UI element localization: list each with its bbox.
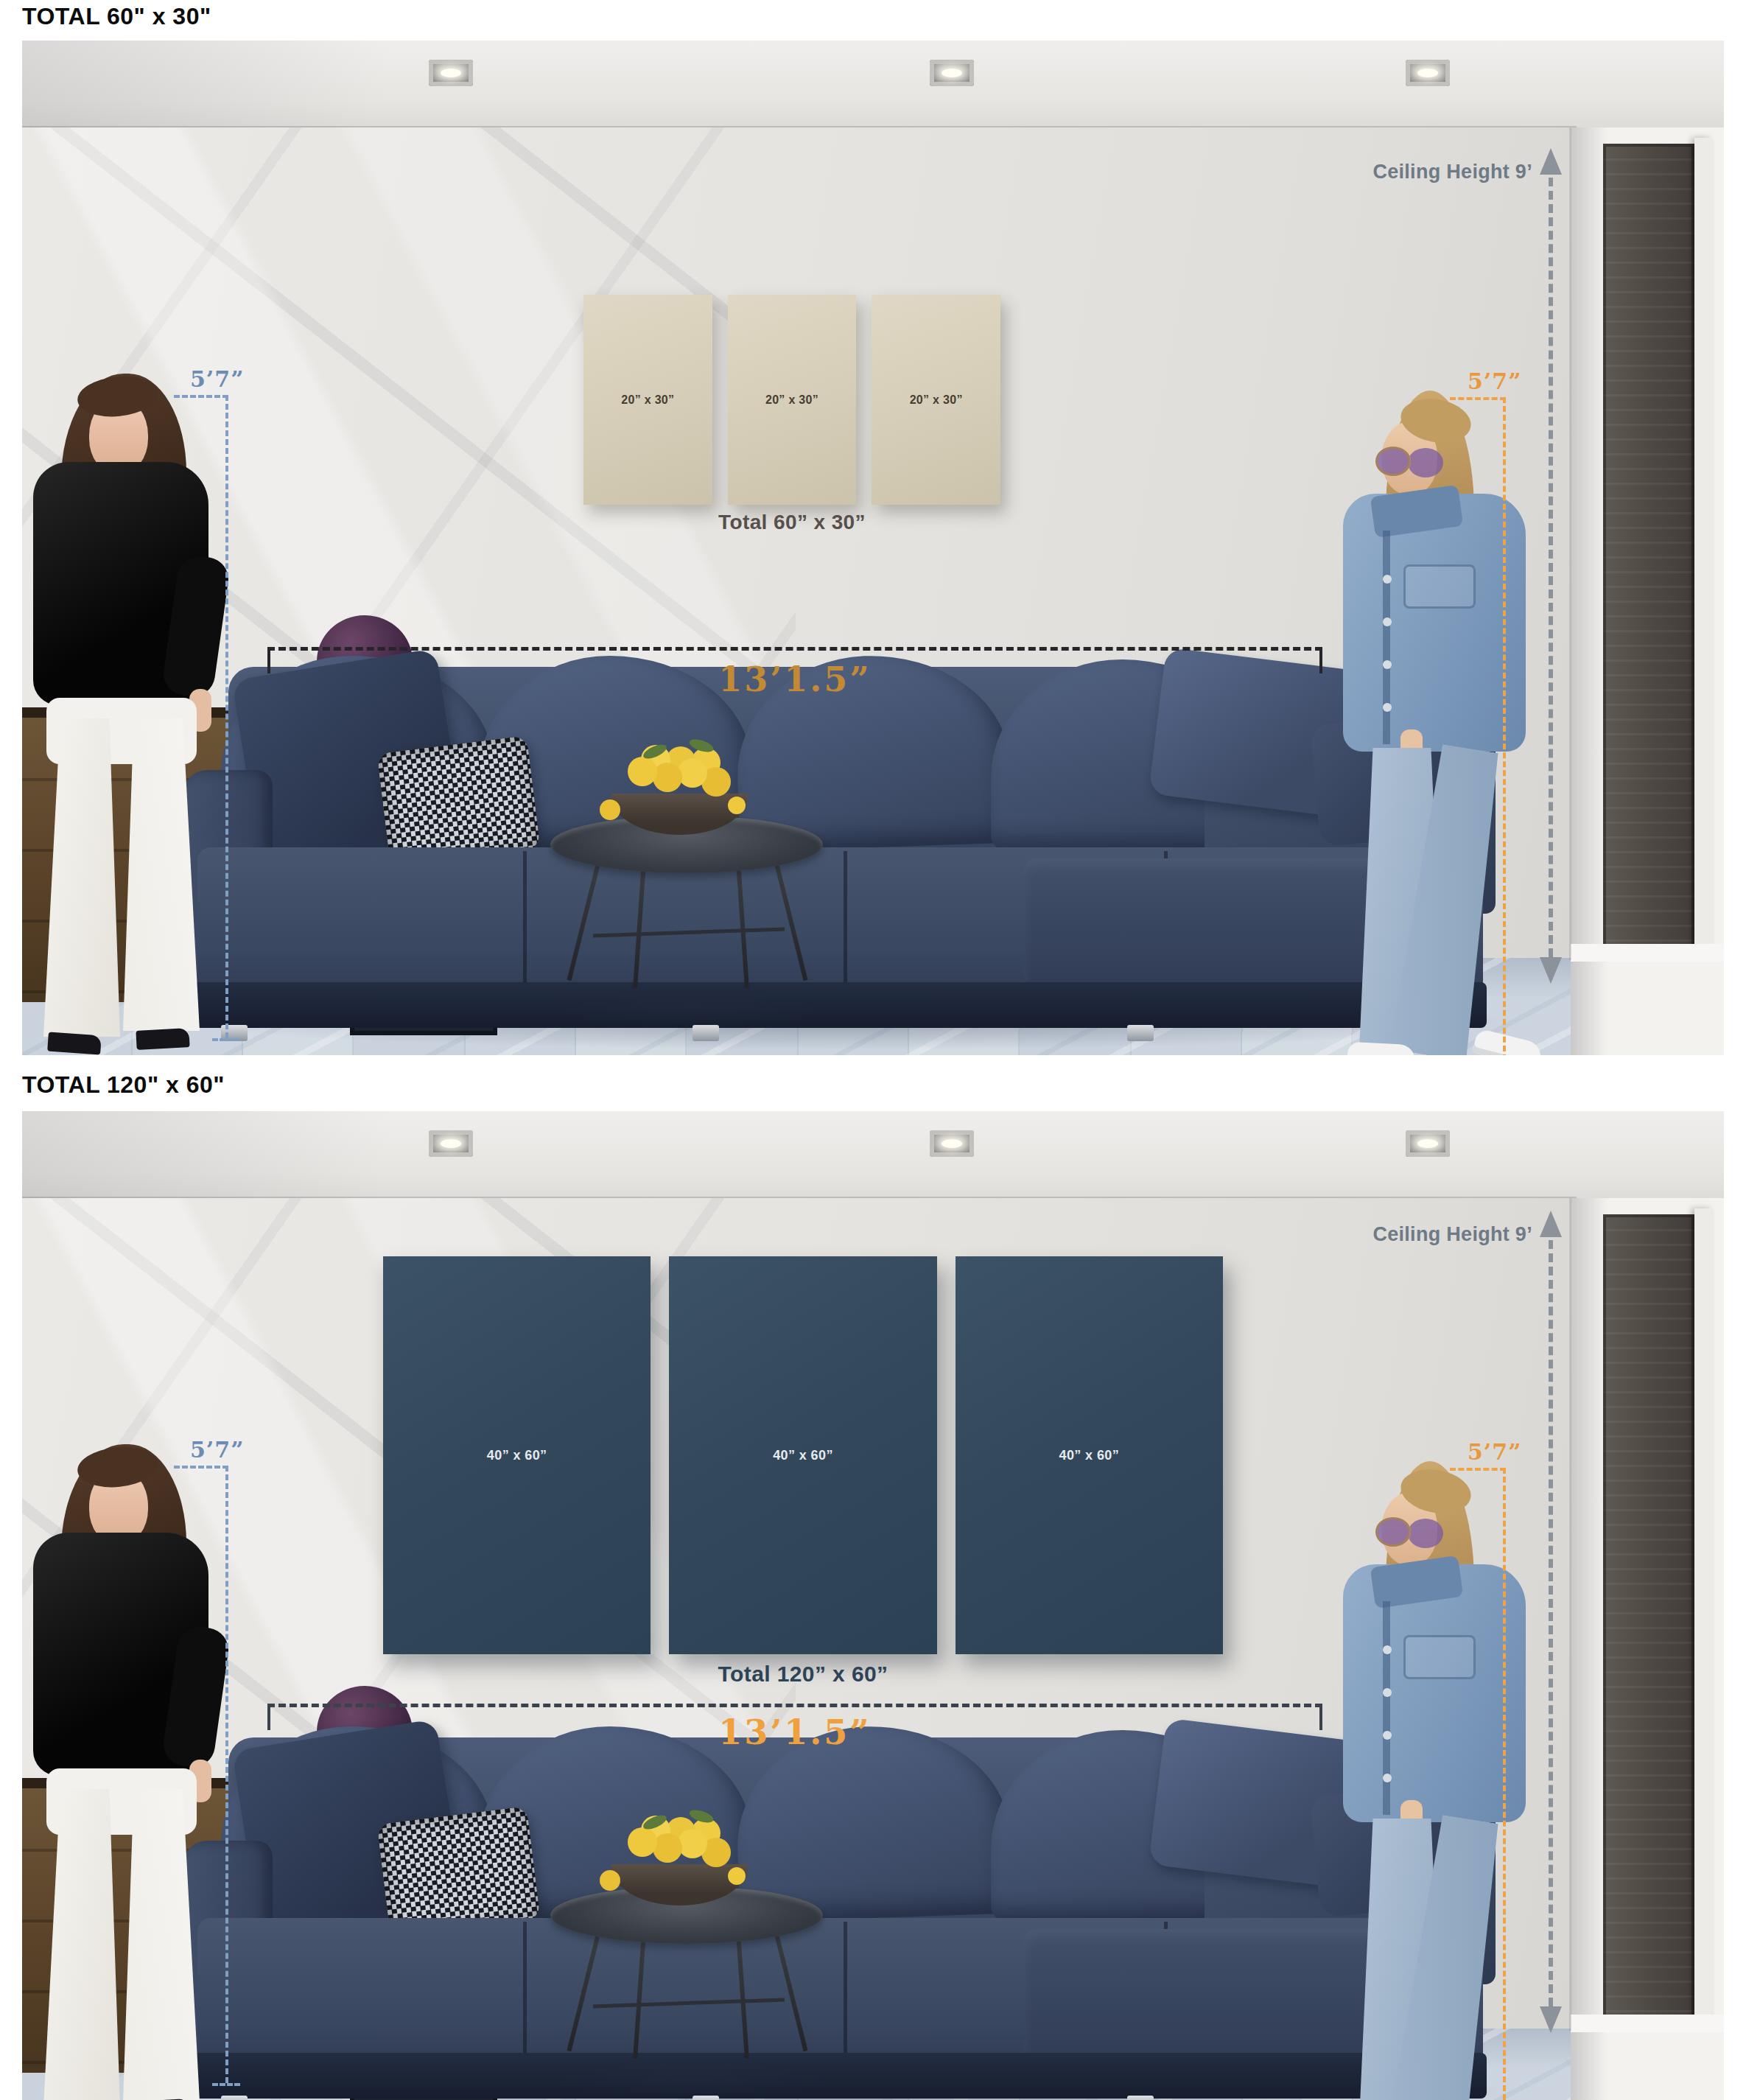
section-title-60x30: TOTAL 60" x 30" [22, 3, 211, 30]
door [1603, 144, 1694, 947]
panel-size-label: 20” x 30” [621, 393, 674, 407]
lemons [628, 1827, 657, 1857]
panel-size-label: 20” x 30” [910, 393, 963, 407]
ceiling-height-label: Ceiling Height 9’ [1230, 161, 1532, 183]
room-photo-120x60: 40” x 60” 40” x 60” 40” x 60” Total 120”… [22, 1111, 1724, 2100]
canvas-panel-set: 20” x 30” 20” x 30” 20” x 30” [583, 295, 1000, 505]
canvas-panel-3: 20” x 30” [872, 295, 1000, 505]
canvas-panel-1: 40” x 60” [383, 1256, 651, 1654]
right-person-height-label: 5’7” [1468, 368, 1521, 394]
sunglasses [1375, 447, 1411, 476]
table-floor-shadow [538, 2062, 847, 2097]
hallway-wall [1571, 127, 1724, 1055]
ceiling-light [1406, 60, 1450, 86]
trouser-leg [43, 1789, 120, 2100]
sofa-foot [1127, 1025, 1154, 1041]
jacket-placket [1383, 1601, 1390, 1815]
wall-corner [1569, 127, 1571, 960]
canvas-panel-3: 40” x 60” [956, 1256, 1223, 1654]
panel-size-label: 40” x 60” [1059, 1448, 1119, 1463]
right-height-dashed-line [1450, 397, 1506, 400]
door [1603, 1214, 1694, 2017]
sectional-sofa [177, 1701, 1496, 2100]
jacket-buttons [1383, 1645, 1392, 1654]
left-height-dashed-line [174, 1466, 228, 1469]
ceiling-height-dashed-line [1549, 1240, 1553, 2006]
white-sneaker [1472, 1028, 1543, 1055]
sofa-width-label: 13’1.5” [267, 1712, 1322, 1752]
woman-left [26, 372, 232, 1050]
jacket-buttons [1383, 575, 1392, 584]
canvas-panel-2: 40” x 60” [669, 1256, 936, 1654]
left-height-dashed-line [225, 395, 228, 1038]
ceiling-height-dashed-line [1549, 178, 1553, 957]
sofa-width-dimension-line [267, 1704, 1322, 1707]
left-person-height-label: 5’7” [190, 1437, 244, 1463]
wall-corner [1569, 1198, 1571, 2031]
left-height-dashed-tick [212, 2083, 240, 2086]
hallway-wall [1571, 1198, 1724, 2100]
left-height-dashed-line [174, 395, 228, 398]
door-frame [1694, 138, 1712, 951]
panels-total-caption: Total 120” x 60” [383, 1662, 1223, 1687]
arrow-down-icon [1540, 2006, 1562, 2033]
canvas-panel-set: 40” x 60” 40” x 60” 40” x 60” [383, 1256, 1223, 1654]
seat-seam [844, 1922, 847, 2054]
sofa-width-dimension-line [267, 647, 1322, 651]
sunglasses [1375, 1517, 1411, 1547]
arrow-up-icon [1540, 148, 1562, 175]
seat-seam [844, 851, 847, 984]
black-heel [47, 1032, 102, 1055]
ceiling-light [429, 60, 473, 86]
section-title-120x60: TOTAL 120" x 60" [22, 1071, 225, 1099]
trouser-leg [43, 718, 120, 1037]
jacket-pocket [1403, 564, 1476, 609]
baseboard [1571, 944, 1724, 962]
woman-right [1330, 1454, 1566, 2100]
ceiling-light [930, 60, 974, 86]
sofa-foot [693, 1025, 719, 1041]
canvas-panel-2: 20” x 30” [728, 295, 857, 505]
table-floor-shadow [538, 991, 847, 1026]
ceiling-height-label: Ceiling Height 9’ [1230, 1223, 1532, 1246]
sofa-width-label: 13’1.5” [267, 659, 1322, 699]
trouser-leg [123, 718, 200, 1031]
jacket-pocket [1403, 1635, 1476, 1679]
ceiling-light [1406, 1130, 1450, 1157]
denim-jacket [1343, 494, 1526, 752]
panel-size-label: 40” x 60” [487, 1448, 547, 1463]
room-photo-60x30: 20” x 30” 20” x 30” 20” x 30” Total 60” … [22, 41, 1724, 1055]
black-heel [136, 1028, 189, 1050]
door-frame [1694, 1208, 1712, 2022]
seat-seam [523, 851, 527, 984]
sofa-foot [1127, 2096, 1154, 2100]
baseboard [1571, 2015, 1724, 2032]
ceiling [22, 1111, 1724, 1198]
panel-size-label: 20” x 30” [765, 393, 818, 407]
panels-total-caption: Total 60” x 30” [583, 511, 1000, 534]
ceiling [22, 41, 1724, 127]
lemons [628, 757, 657, 786]
arrow-up-icon [1540, 1211, 1562, 1237]
seat-seam [523, 1922, 527, 2054]
right-height-dashed-line [1503, 397, 1506, 1055]
ceiling-light [930, 1130, 974, 1157]
ceiling-light [429, 1130, 473, 1157]
panel-size-label: 40” x 60” [773, 1448, 833, 1463]
right-height-dashed-line [1503, 1468, 1506, 2100]
right-person-height-label: 5’7” [1468, 1439, 1521, 1465]
canvas-panel-1: 20” x 30” [583, 295, 712, 505]
woman-left [26, 1443, 232, 2100]
denim-jacket [1343, 1564, 1526, 1822]
woman-right [1330, 383, 1566, 1055]
right-height-dashed-line [1450, 1468, 1506, 1471]
left-height-dashed-tick [212, 1038, 240, 1041]
arrow-down-icon [1540, 957, 1562, 984]
jacket-placket [1383, 531, 1390, 744]
trouser-leg [123, 1789, 200, 2100]
left-height-dashed-line [225, 1466, 228, 2083]
left-person-height-label: 5’7” [190, 366, 244, 392]
